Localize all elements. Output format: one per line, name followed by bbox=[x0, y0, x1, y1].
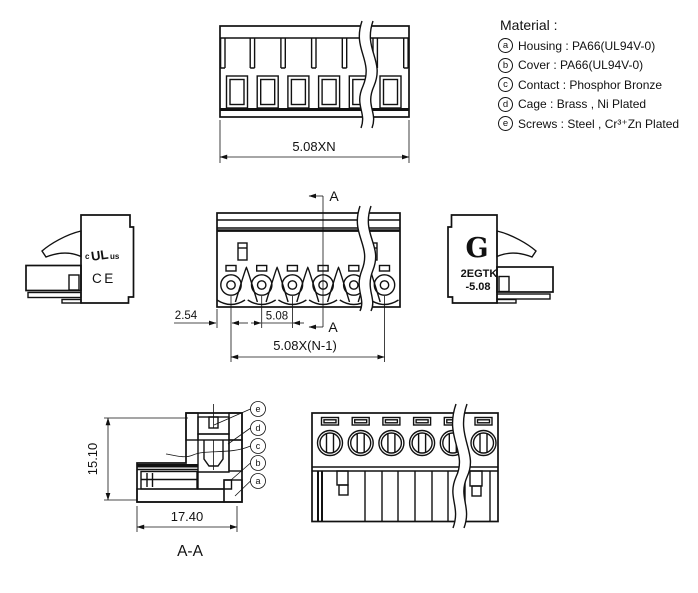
break-line-top bbox=[359, 21, 377, 128]
callout-leaders bbox=[166, 409, 251, 496]
dim-depth-label: 17.40 bbox=[171, 509, 204, 524]
materials-title: Material : bbox=[500, 17, 694, 33]
material-marker-c: c bbox=[498, 77, 513, 92]
right-bottom-lip bbox=[497, 300, 516, 304]
side-view-right: G 2EGTK -5.08 bbox=[448, 215, 553, 303]
material-item-housing: a Housing : PA66(UL94V-0) bbox=[498, 38, 694, 53]
section-cut-line: A A bbox=[309, 188, 339, 335]
right-plug bbox=[497, 267, 553, 292]
material-item-contact: c Contact : Phosphor Bronze bbox=[498, 77, 694, 92]
material-text-cover: Cover : PA66(UL94V-0) bbox=[518, 58, 643, 72]
top-view bbox=[220, 21, 409, 128]
dim-height-label: 15.10 bbox=[85, 443, 100, 476]
cul-us-mark: c UL us bbox=[85, 247, 120, 264]
right-latch-arm bbox=[497, 231, 536, 257]
section-arrow-top-label: A bbox=[329, 188, 339, 204]
material-marker-d: d bbox=[498, 97, 513, 112]
material-marker-a: a bbox=[498, 38, 513, 53]
left-plug bbox=[26, 266, 81, 291]
front-latch-windows bbox=[238, 243, 377, 260]
dim-depth: 17.40 bbox=[137, 506, 237, 532]
brand-pitch-code: -5.08 bbox=[465, 281, 490, 293]
left-latch-arm bbox=[42, 231, 81, 257]
top-view-dividers bbox=[221, 38, 409, 68]
brand-logo: G bbox=[465, 233, 488, 264]
dim-top-width: 5.08XN bbox=[220, 120, 409, 163]
break-line-front bbox=[357, 206, 377, 311]
material-item-cover: b Cover : PA66(UL94V-0) bbox=[498, 58, 694, 73]
technical-drawing-page: 5.08XN c UL us CE G 2EGTK -5.08 bbox=[0, 0, 698, 593]
callout-d: d bbox=[255, 423, 260, 433]
dim-span-label: 5.08X(N-1) bbox=[273, 338, 337, 353]
dim-offset-label: 2.54 bbox=[175, 310, 198, 322]
material-text-screws: Screws : Steel , Cr³⁺Zn Plated bbox=[518, 117, 679, 131]
ul-mark-us: us bbox=[110, 252, 120, 261]
plug-slots bbox=[322, 418, 493, 426]
left-bottom-lip bbox=[62, 300, 81, 304]
section-arrow-bottom-label: A bbox=[328, 319, 338, 335]
material-item-cage: d Cage : Brass , Ni Plated bbox=[498, 97, 694, 112]
material-text-cage: Cage : Brass , Ni Plated bbox=[518, 97, 646, 111]
callout-e: e bbox=[255, 404, 260, 414]
material-marker-b: b bbox=[498, 58, 513, 73]
ul-mark-logo: UL bbox=[90, 247, 109, 264]
callout-a: a bbox=[255, 476, 260, 486]
materials-list: Material : a Housing : PA66(UL94V-0) b C… bbox=[498, 17, 694, 136]
material-text-contact: Contact : Phosphor Bronze bbox=[518, 78, 662, 92]
callout-b: b bbox=[255, 458, 260, 468]
material-marker-e: e bbox=[498, 116, 513, 131]
material-text-housing: Housing : PA66(UL94V-0) bbox=[518, 39, 655, 53]
dim-pitch-label: 5.08 bbox=[266, 311, 288, 323]
plug-front-view bbox=[312, 404, 498, 528]
section-label: A-A bbox=[177, 543, 204, 560]
dim-span: 5.08X(N-1) bbox=[231, 338, 385, 357]
dim-pitch: 5.08 bbox=[251, 311, 304, 324]
front-view bbox=[217, 206, 400, 311]
break-line-plug bbox=[453, 404, 471, 528]
ce-mark: CE bbox=[92, 271, 116, 286]
ul-mark-c: c bbox=[85, 252, 90, 261]
callout-c: c bbox=[256, 441, 261, 451]
section-view: e d c b a 15.10 17.40 A-A bbox=[85, 402, 266, 561]
screw-section bbox=[198, 404, 229, 472]
brand-model: 2EGTK bbox=[461, 268, 498, 280]
callout-markers: e d c b a bbox=[251, 402, 266, 489]
wire-cavity bbox=[137, 464, 232, 489]
material-item-screws: e Screws : Steel , Cr³⁺Zn Plated bbox=[498, 116, 694, 131]
dim-top-width-label: 5.08XN bbox=[292, 139, 335, 154]
side-view-left: c UL us CE bbox=[26, 215, 134, 303]
